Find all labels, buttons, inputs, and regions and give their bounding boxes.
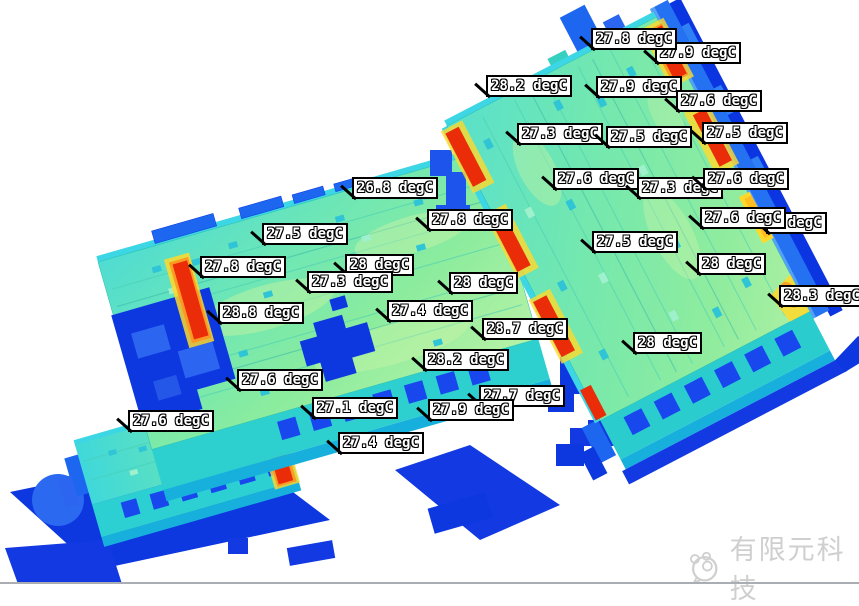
thermal-scene [0, 0, 859, 586]
company-logo-icon [686, 547, 722, 587]
watermark: 有限元科技 [686, 528, 859, 606]
watermark-text: 有限元科技 [730, 528, 859, 606]
bottom-divider [0, 582, 859, 584]
